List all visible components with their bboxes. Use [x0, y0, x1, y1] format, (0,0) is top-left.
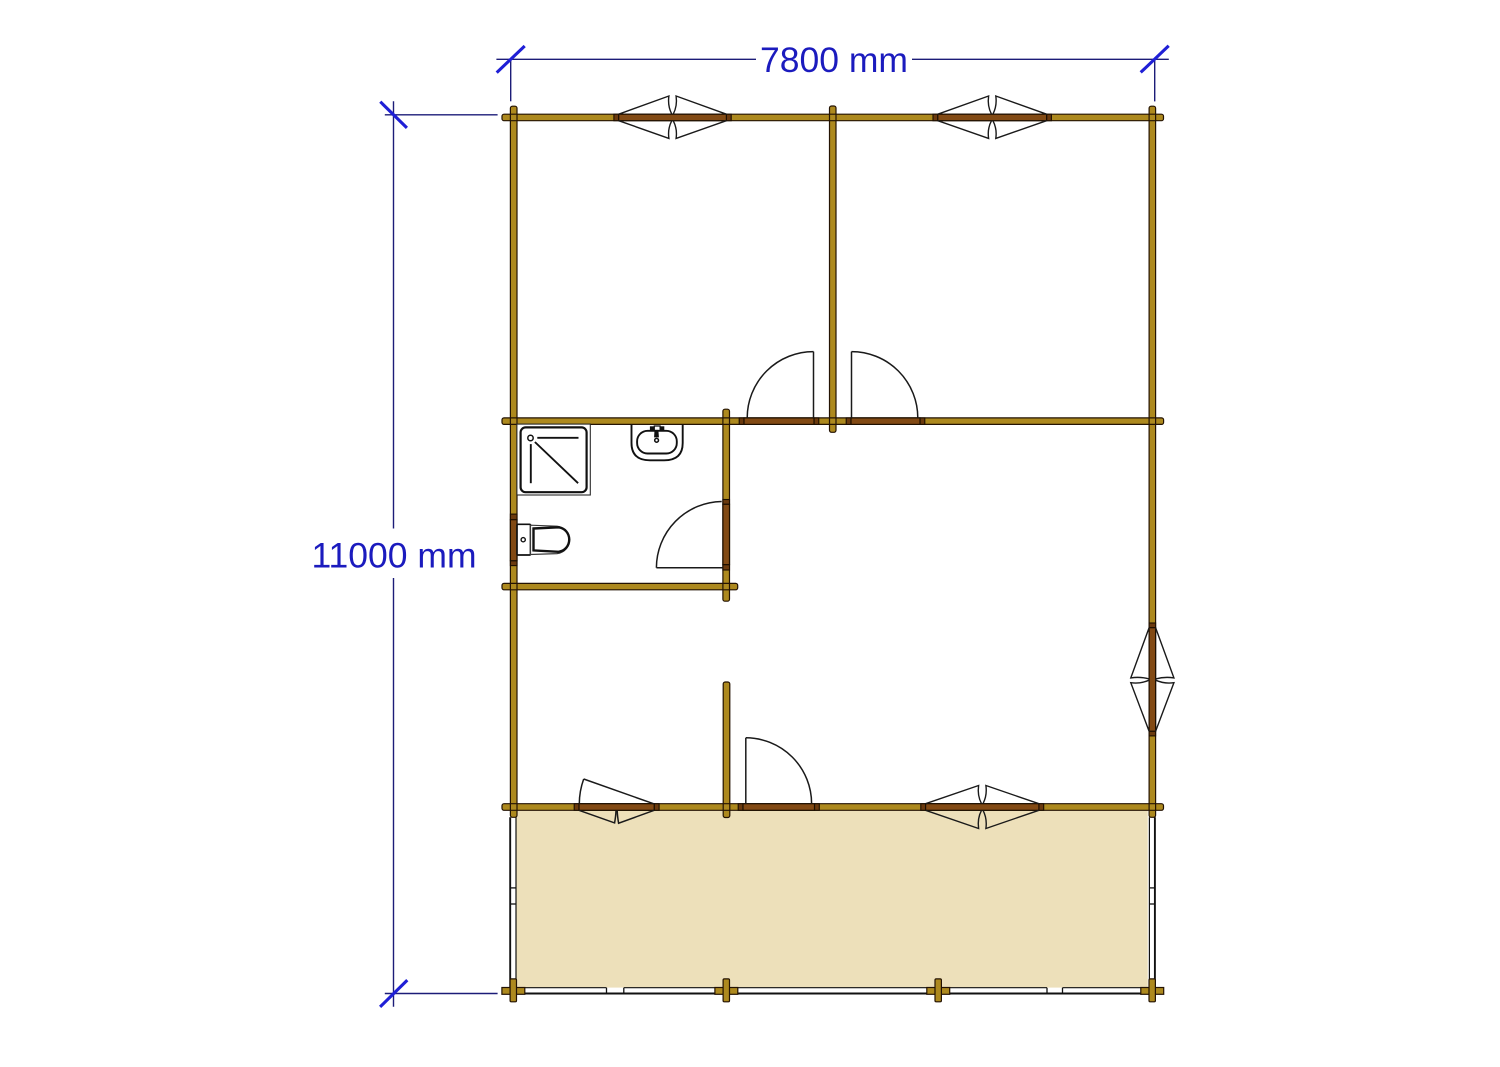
svg-text:7800 mm: 7800 mm — [760, 40, 908, 80]
svg-text:11000 mm: 11000 mm — [311, 536, 476, 576]
